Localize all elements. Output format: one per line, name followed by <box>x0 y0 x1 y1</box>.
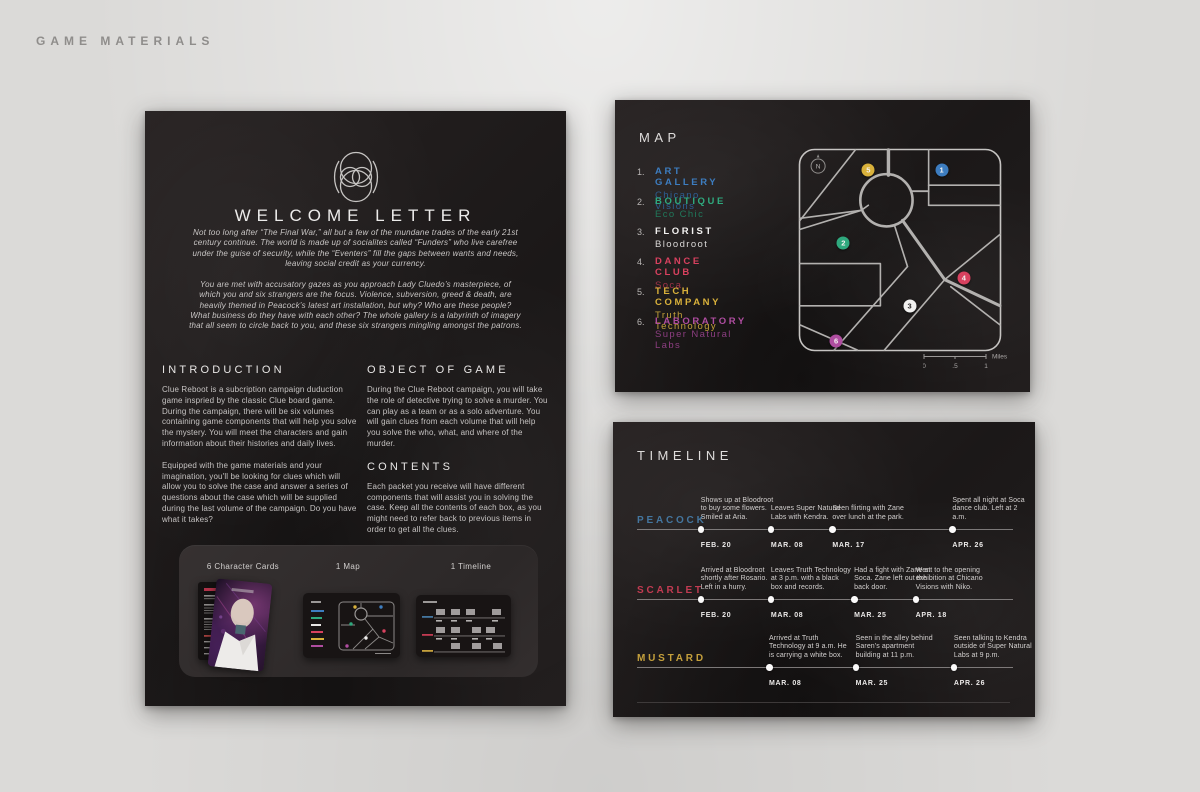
timeline-label: 1 Timeline <box>451 562 491 571</box>
page-title: GAME MATERIALS <box>36 34 214 48</box>
timeline-title: TIMELINE <box>637 448 733 463</box>
svg-text:0: 0 <box>923 363 926 370</box>
row-label-mustard: MUSTARD <box>637 653 706 664</box>
event-dot <box>951 664 958 671</box>
introduction-paragraph-1: Clue Reboot is a subcription campaign du… <box>162 385 359 450</box>
svg-text:Miles: Miles <box>992 354 1008 361</box>
contents-tray: 6 Character Cards 1 Map 1 Timeline <box>179 545 538 677</box>
compass-icon: N <box>811 154 825 173</box>
event-dot <box>698 526 705 533</box>
intro-paragraph-2: You are met with accusatory gazes as you… <box>189 280 522 331</box>
svg-text:1: 1 <box>984 363 988 370</box>
map-card: MAP 1. ART GALLERY Chicano Visions 2. BO… <box>615 100 1030 392</box>
row-label-scarlet: SCARLET <box>637 585 704 596</box>
map-thumbnail <box>303 593 400 658</box>
event-dot <box>698 596 705 603</box>
event-dot <box>768 526 775 533</box>
map-marker-2: 2 <box>837 237 850 250</box>
event-dot <box>829 526 836 533</box>
timeline-thumbnail <box>416 595 511 657</box>
introduction-section: INTRODUCTION Clue Reboot is a subcriptio… <box>162 364 359 537</box>
welcome-letter-card: WELCOME LETTER Not too long after “The F… <box>145 111 566 706</box>
map-marker-4: 4 <box>957 271 970 284</box>
character-cards-label: 6 Character Cards <box>207 562 279 571</box>
event-dot <box>853 664 860 671</box>
map-label: 1 Map <box>336 562 360 571</box>
event-dot <box>949 526 956 533</box>
object-of-game-paragraph: During the Clue Reboot campaign, you wil… <box>367 385 550 450</box>
timeline-footer-rule <box>637 702 1010 703</box>
map-marker-1: 1 <box>935 164 948 177</box>
timeline-axis <box>637 599 1013 600</box>
logo-icon <box>329 145 383 209</box>
map-marker-6: 6 <box>830 334 843 347</box>
street-map: N 1 2 3 4 5 6 <box>798 148 1002 352</box>
event-dot <box>913 596 920 603</box>
timeline-axis <box>637 529 1013 530</box>
timeline-row-mustard: MUSTARD Arrived at Truth Technology at 9… <box>637 608 1012 693</box>
row-label-peacock: PEACOCK <box>637 515 707 526</box>
character-card-portrait-thumbnail <box>208 578 273 671</box>
contents-heading: CONTENTS <box>367 461 550 473</box>
introduction-heading: INTRODUCTION <box>162 364 359 376</box>
event-dot <box>851 596 858 603</box>
map-title: MAP <box>639 130 681 145</box>
map-marker-5: 5 <box>862 164 875 177</box>
contents-paragraph: Each packet you receive will have differ… <box>367 482 550 536</box>
introduction-paragraph-2: Equipped with the game materials and you… <box>162 461 359 526</box>
object-contents-section: OBJECT OF GAME During the Clue Reboot ca… <box>367 364 550 547</box>
timeline-card: TIMELINE PEACOCK Shows up at Bloodroot t… <box>613 422 1035 717</box>
svg-text:.5: .5 <box>952 363 958 370</box>
intro-paragraph-1: Not too long after “The Final War,” all … <box>189 228 522 269</box>
event-dot <box>768 596 775 603</box>
object-of-game-heading: OBJECT OF GAME <box>367 364 550 376</box>
event-dot <box>766 664 773 671</box>
letter-title: WELCOME LETTER <box>145 206 566 226</box>
svg-text:N: N <box>816 164 821 171</box>
map-marker-3: 3 <box>903 299 916 312</box>
map-scale-bar: 0 .5 1 Miles <box>923 351 1023 371</box>
